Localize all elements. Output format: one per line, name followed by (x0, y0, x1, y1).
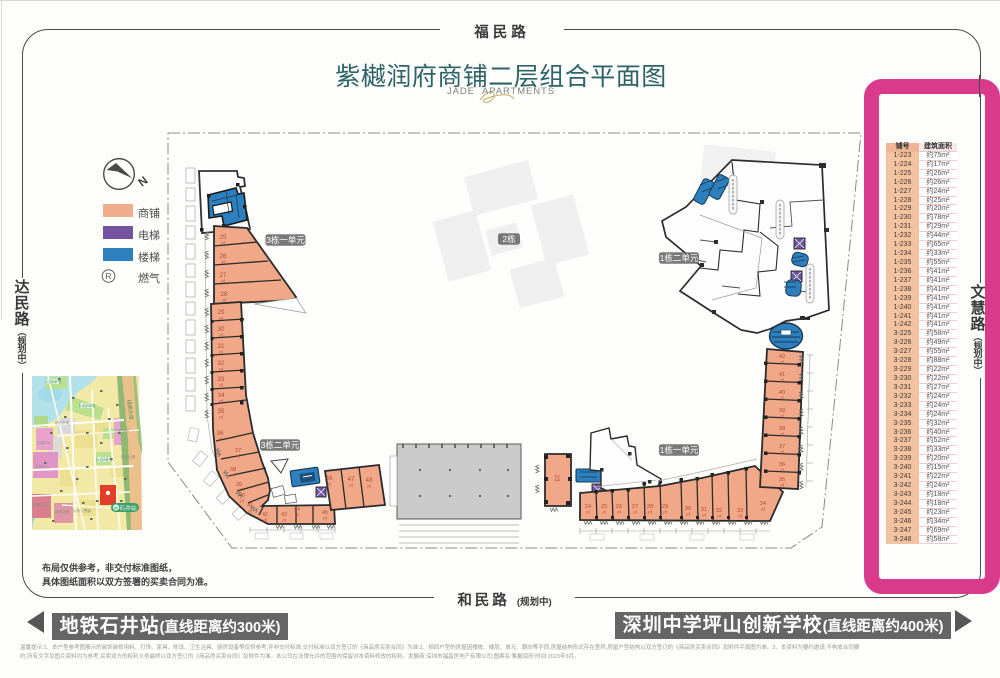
svg-text:3栋一单元: 3栋一单元 (266, 235, 305, 245)
svg-text:公园绿地: 公园绿地 (79, 402, 97, 409)
svg-text:N: N (137, 175, 151, 190)
svg-text:㎡: ㎡ (219, 315, 223, 321)
svg-text:㎡: ㎡ (738, 513, 742, 519)
svg-text:㎡: ㎡ (367, 483, 371, 489)
svg-text:㎡: ㎡ (586, 509, 590, 515)
svg-text:㎡: ㎡ (219, 414, 223, 420)
svg-text:R: R (105, 271, 111, 281)
svg-text:青年公寓: 青年公寓 (121, 454, 136, 459)
svg-text:㎡: ㎡ (780, 413, 784, 419)
svg-text:㎡: ㎡ (219, 332, 223, 338)
svg-text:2栋: 2栋 (502, 234, 516, 244)
svg-text:㎡: ㎡ (323, 515, 327, 521)
svg-text:㎡: ㎡ (648, 509, 652, 515)
svg-text:㎡: ㎡ (780, 431, 784, 437)
svg-text:㎡: ㎡ (780, 482, 784, 488)
svg-text:M: M (114, 506, 118, 511)
svg-text:㎡: ㎡ (221, 278, 225, 284)
svg-text:㎡: ㎡ (263, 517, 267, 523)
svg-text:㎡: ㎡ (702, 512, 706, 518)
svg-text:㎡: ㎡ (780, 377, 784, 383)
svg-text:㎡: ㎡ (218, 436, 222, 442)
svg-text:文化中心: 文化中心 (35, 464, 50, 469)
svg-text:石井站: 石井站 (119, 504, 137, 512)
svg-text:㎡: ㎡ (780, 449, 784, 455)
svg-text:3栋二单元: 3栋二单元 (261, 440, 300, 450)
svg-text:㎡: ㎡ (295, 512, 299, 518)
svg-text:㎡: ㎡ (219, 349, 223, 355)
svg-text:㎡: ㎡ (221, 240, 225, 246)
svg-text:㎡: ㎡ (221, 259, 225, 265)
svg-text:㎡: ㎡ (780, 395, 784, 401)
svg-text:㎡: ㎡ (717, 513, 721, 519)
svg-text:㎡: ㎡ (780, 467, 784, 473)
svg-text:㎡: ㎡ (780, 359, 784, 365)
svg-text:㎡: ㎡ (349, 482, 353, 488)
svg-text:文体中心: 文体中心 (37, 440, 52, 445)
svg-text:23: 23 (553, 475, 560, 482)
svg-text:㎡: ㎡ (617, 509, 621, 515)
svg-text:㎡: ㎡ (761, 506, 765, 512)
svg-text:㎡: ㎡ (686, 511, 690, 517)
svg-text:城市花园: 城市花园 (55, 509, 70, 514)
svg-text:1栋二单元: 1栋二单元 (660, 253, 699, 263)
svg-text:㎡: ㎡ (236, 453, 240, 459)
svg-text:㎡: ㎡ (282, 517, 286, 523)
svg-text:九年一贯制: 九年一贯制 (73, 508, 91, 513)
svg-text:丽景名苑: 丽景名苑 (33, 502, 48, 507)
svg-text:㎡: ㎡ (219, 366, 223, 372)
svg-text:综合市场: 综合市场 (55, 420, 70, 425)
svg-text:㎡: ㎡ (633, 509, 637, 515)
svg-text:㎡: ㎡ (663, 509, 667, 515)
svg-text:㎡: ㎡ (219, 382, 223, 388)
svg-text:㎡: ㎡ (222, 297, 226, 303)
svg-text:㎡: ㎡ (231, 472, 235, 478)
svg-text:㎡: ㎡ (602, 509, 606, 515)
svg-text:创新学校: 创新学校 (115, 428, 130, 433)
svg-text:1栋一单元: 1栋一单元 (660, 445, 699, 455)
svg-text:㎡: ㎡ (327, 481, 331, 487)
